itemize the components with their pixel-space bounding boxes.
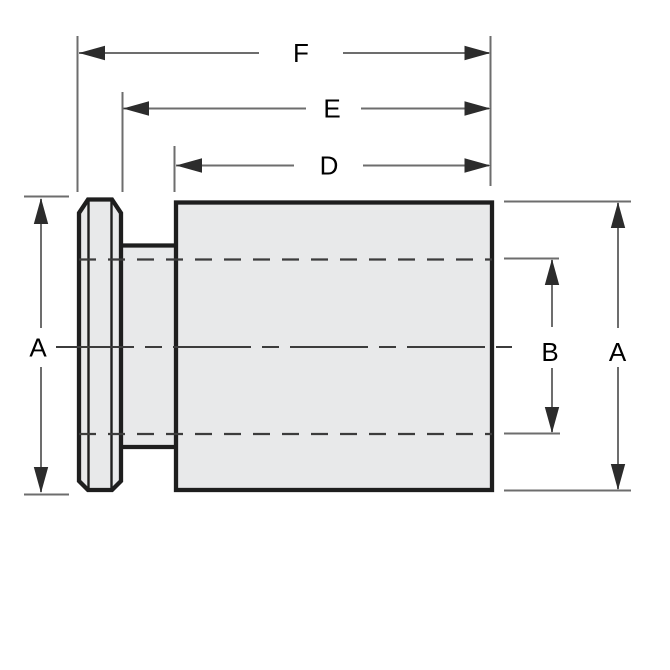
technical-drawing: F E D A <box>0 0 670 670</box>
dim-f-arrow-right-icon <box>465 46 491 60</box>
dim-a-left-label: A <box>29 333 47 363</box>
dim-e-label: E <box>323 94 340 124</box>
dim-a-right-label: A <box>609 337 627 367</box>
dim-d-label: D <box>320 151 339 181</box>
dim-e-arrow-left-icon <box>123 101 149 115</box>
dim-f-label: F <box>293 38 309 68</box>
flange-outline <box>79 200 121 491</box>
dim-f-arrow-left-icon <box>79 46 105 60</box>
dim-b-label: B <box>541 337 558 367</box>
dimension-d: D <box>176 151 491 181</box>
dimension-a-left: A <box>29 198 48 493</box>
dim-a-right-arrow-down-icon <box>611 464 625 490</box>
dim-b-arrow-up-icon <box>545 259 559 285</box>
dimension-e: E <box>123 94 491 124</box>
dim-a-left-arrow-up-icon <box>34 198 48 224</box>
dimension-b: B <box>541 259 559 433</box>
dim-e-arrow-right-icon <box>465 101 491 115</box>
dim-a-right-arrow-up-icon <box>611 202 625 228</box>
dim-d-arrow-right-icon <box>465 158 491 172</box>
dimension-f: F <box>79 38 491 68</box>
dimension-a-right: A <box>609 202 627 490</box>
dim-d-arrow-left-icon <box>176 158 202 172</box>
dim-b-arrow-down-icon <box>545 407 559 433</box>
dim-a-left-arrow-down-icon <box>34 467 48 493</box>
drawing-canvas: F E D A <box>0 0 670 670</box>
part-view <box>56 200 512 491</box>
